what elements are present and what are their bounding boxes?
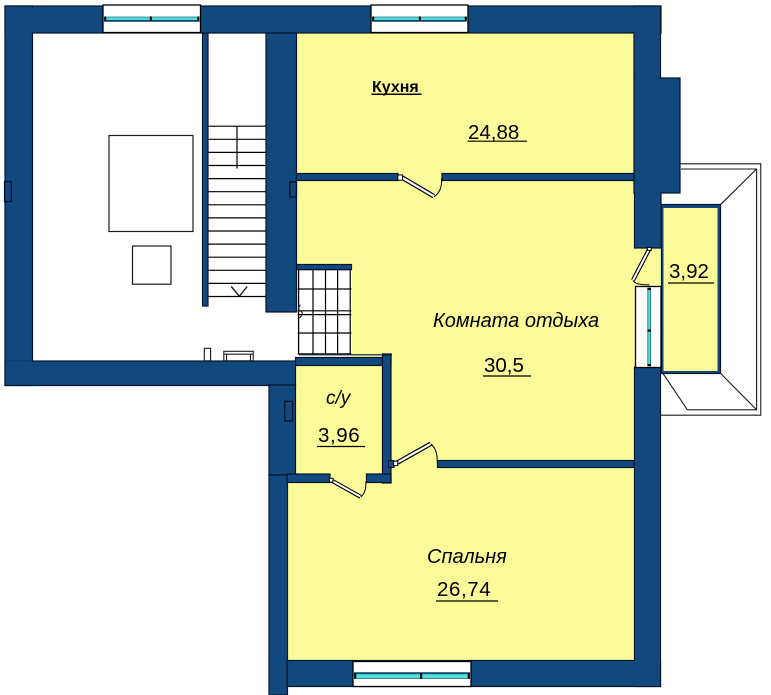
svg-text:30,5: 30,5: [484, 354, 524, 377]
svg-text:с/у: с/у: [326, 388, 352, 409]
svg-text:Спальня: Спальня: [427, 546, 507, 568]
svg-text:3,92: 3,92: [669, 260, 709, 283]
svg-text:3,96: 3,96: [318, 424, 360, 447]
svg-text:24,88: 24,88: [468, 121, 519, 144]
svg-text:26,74: 26,74: [437, 578, 491, 601]
svg-text:Комната отдыха: Комната отдыха: [433, 310, 599, 332]
